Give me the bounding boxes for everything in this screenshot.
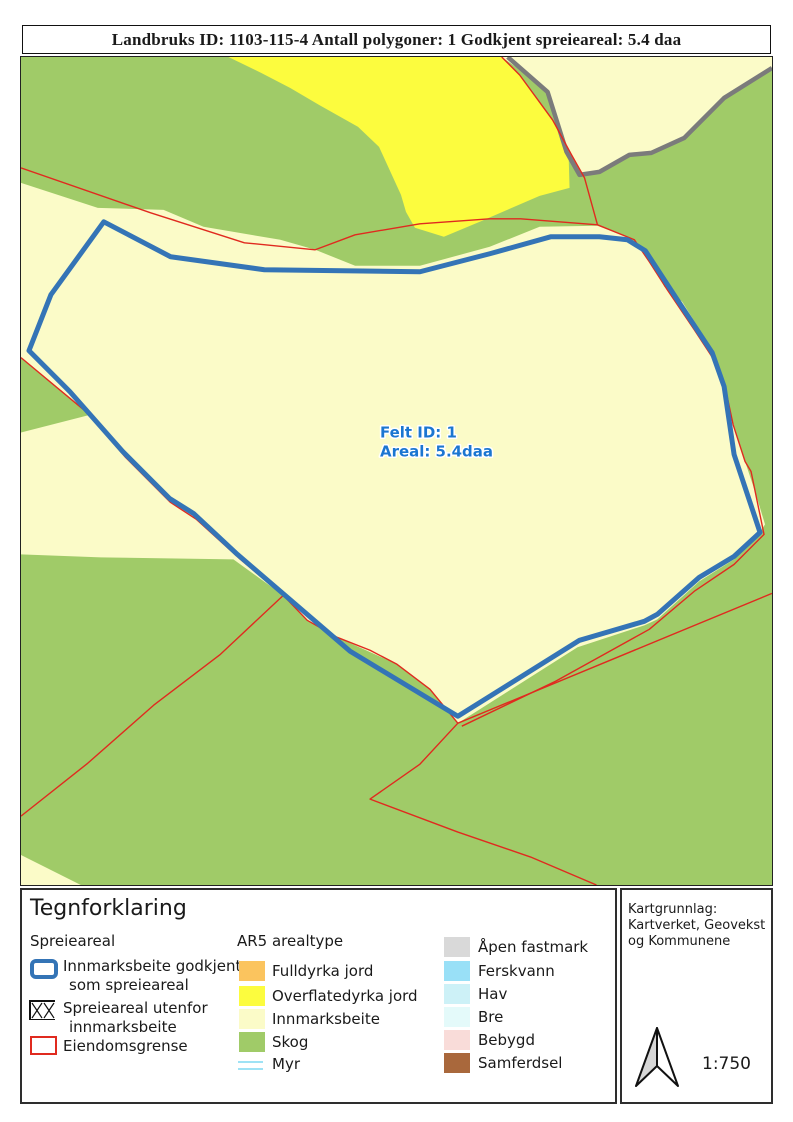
legend-swatch-innmarksbeite — [239, 1009, 265, 1029]
legend-swatch-skog — [239, 1032, 265, 1052]
legend-label-apen-fastmark: Åpen fastmark — [478, 938, 588, 957]
legend-swatch-myr — [237, 1057, 263, 1077]
legend-label-innmarksbeite: Innmarksbeite — [272, 1010, 380, 1029]
legend-panel: Tegnforklaring Spreieareal Innmarksbeite… — [20, 888, 617, 1104]
field-area-label: Areal: 5.4daa — [380, 443, 493, 461]
legend-swatch-overflatedyrka — [239, 986, 265, 1006]
legend-swatch-apen-fastmark — [444, 937, 470, 957]
basemap-credit-panel: Kartgrunnlag: Kartverket, Geovekst og Ko… — [620, 888, 773, 1104]
basemap-credit-text: Kartgrunnlag: Kartverket, Geovekst og Ko… — [628, 902, 765, 950]
legend-label-samferdsel: Samferdsel — [478, 1054, 562, 1073]
legend-label-overflatedyrka: Overflatedyrka jord — [272, 987, 418, 1006]
legend-label-ferskvann: Ferskvann — [478, 962, 555, 981]
field-id-label: Felt ID: 1 — [380, 424, 457, 442]
legend-swatch-samferdsel — [444, 1053, 470, 1073]
legend-label-myr: Myr — [272, 1055, 300, 1074]
legend-label-bebygd: Bebygd — [478, 1031, 535, 1050]
legend-swatch-hav — [444, 984, 470, 1004]
legend-label-hav: Hav — [478, 985, 507, 1004]
legend-group-ar5: AR5 arealtype — [237, 932, 343, 950]
legend-heading: Tegnforklaring — [30, 896, 187, 921]
legend-label-eiendomsgrense: Eiendomsgrense — [63, 1037, 188, 1056]
map-canvas: Felt ID: 1 Areal: 5.4daa — [21, 57, 772, 885]
legend-label-bre: Bre — [478, 1008, 503, 1027]
map-title-bar: Landbruks ID: 1103-115-4 Antall polygone… — [22, 25, 771, 54]
legend-label-fulldyrka: Fulldyrka jord — [272, 962, 373, 981]
legend-label-spreieareal-utenfor: Spreieareal utenfor innmarksbeite — [63, 999, 208, 1037]
north-arrow-icon — [628, 1024, 688, 1092]
legend-swatch-ferskvann — [444, 961, 470, 981]
legend-swatch-eiendomsgrense — [30, 1036, 57, 1055]
map-viewport: Felt ID: 1 Areal: 5.4daa — [20, 56, 773, 886]
map-scale-label: 1:750 — [702, 1054, 751, 1074]
legend-label-skog: Skog — [272, 1033, 308, 1052]
legend-swatch-innmarksbeite-godkjent — [30, 959, 58, 979]
legend-swatch-spreieareal-utenfor — [29, 1000, 55, 1020]
legend-swatch-fulldyrka — [239, 961, 265, 981]
legend-swatch-bre — [444, 1007, 470, 1027]
legend-group-spreieareal: Spreieareal — [30, 932, 115, 950]
legend-swatch-bebygd — [444, 1030, 470, 1050]
legend-label-innmarksbeite-godkjent: Innmarksbeite godkjent som spreieareal — [63, 957, 241, 995]
map-title-text: Landbruks ID: 1103-115-4 Antall polygone… — [112, 30, 682, 49]
